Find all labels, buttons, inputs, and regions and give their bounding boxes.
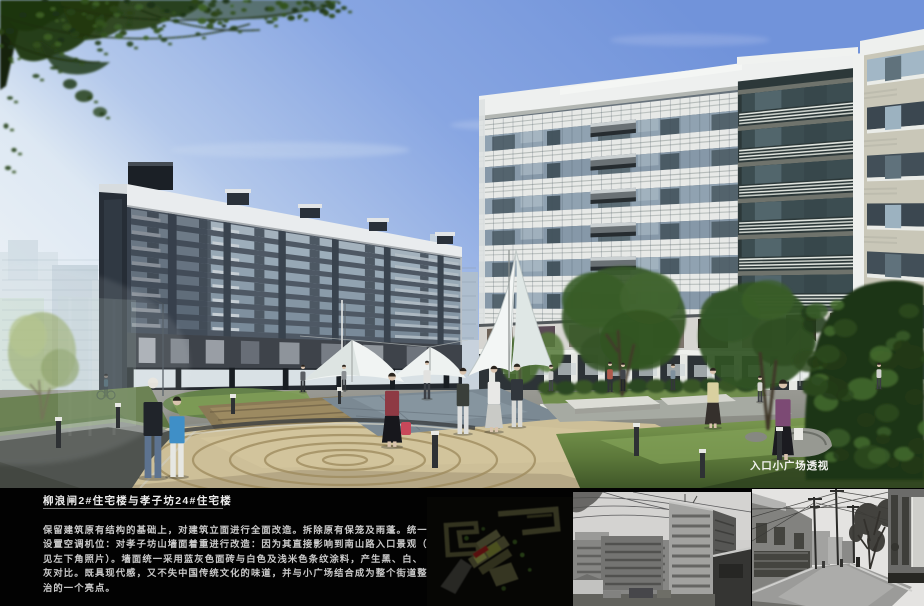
svg-text:入口小广场透视: 入口小广场透视	[750, 459, 829, 472]
